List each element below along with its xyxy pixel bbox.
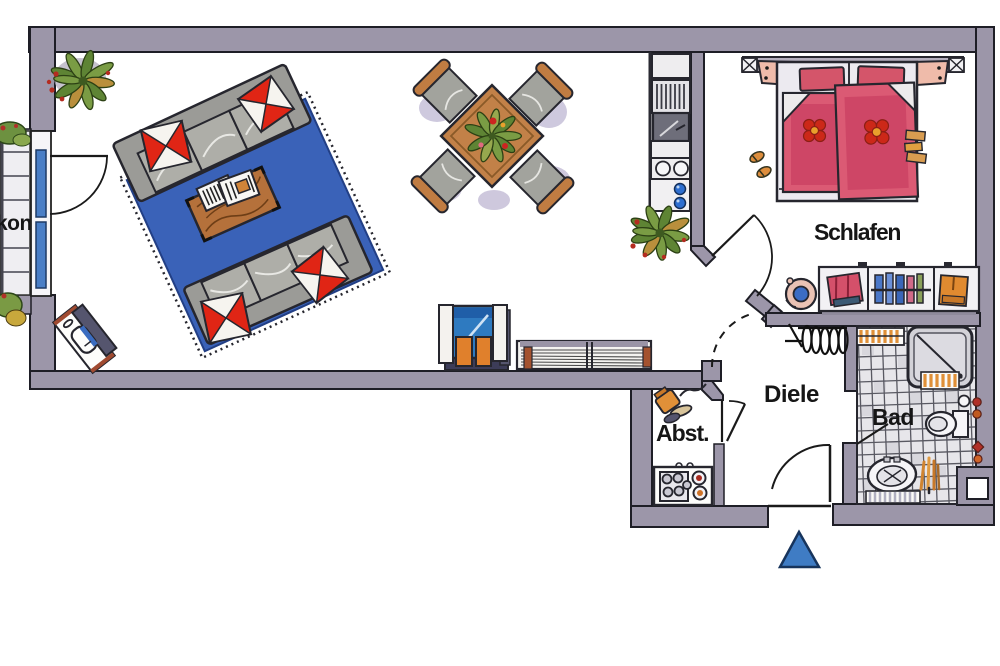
svg-text:Diele: Diele bbox=[764, 381, 819, 408]
svg-text:Bad: Bad bbox=[872, 404, 914, 430]
svg-text:kon: kon bbox=[0, 212, 32, 235]
svg-text:Abst.: Abst. bbox=[656, 420, 709, 446]
svg-text:Schlafen: Schlafen bbox=[814, 219, 900, 245]
